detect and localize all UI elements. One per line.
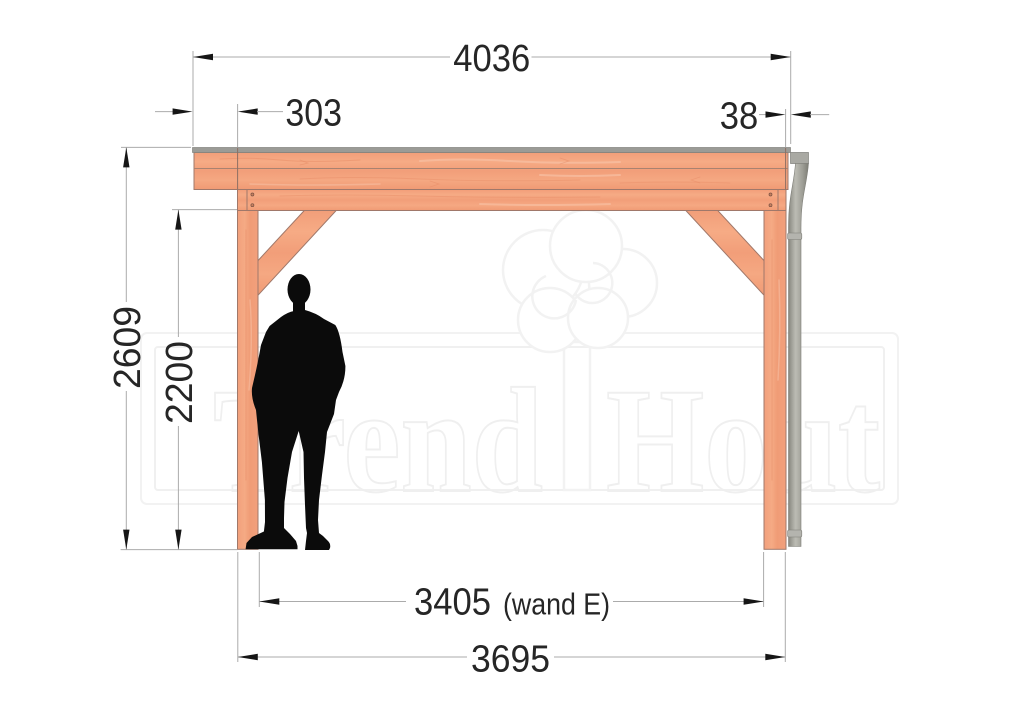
svg-text:3405: 3405 xyxy=(414,582,491,624)
svg-text:2609: 2609 xyxy=(107,306,149,389)
svg-text:303: 303 xyxy=(285,92,342,134)
svg-text:3695: 3695 xyxy=(471,638,550,680)
svg-text:38: 38 xyxy=(720,95,759,137)
svg-text:2200: 2200 xyxy=(159,341,201,424)
svg-text:4036: 4036 xyxy=(453,38,530,80)
svg-text:Hout: Hout xyxy=(606,358,880,524)
svg-text:(wand E): (wand E) xyxy=(503,587,610,622)
